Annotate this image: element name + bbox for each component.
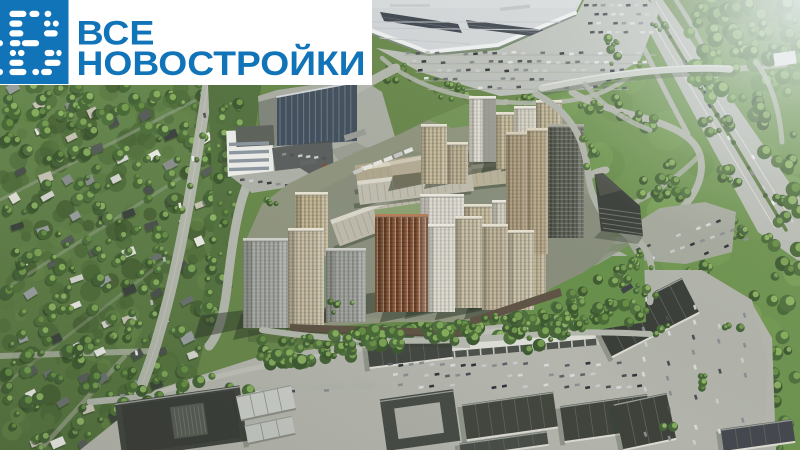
svg-text:НОВОСТРОЙКИ: НОВОСТРОЙКИ xyxy=(77,43,366,83)
